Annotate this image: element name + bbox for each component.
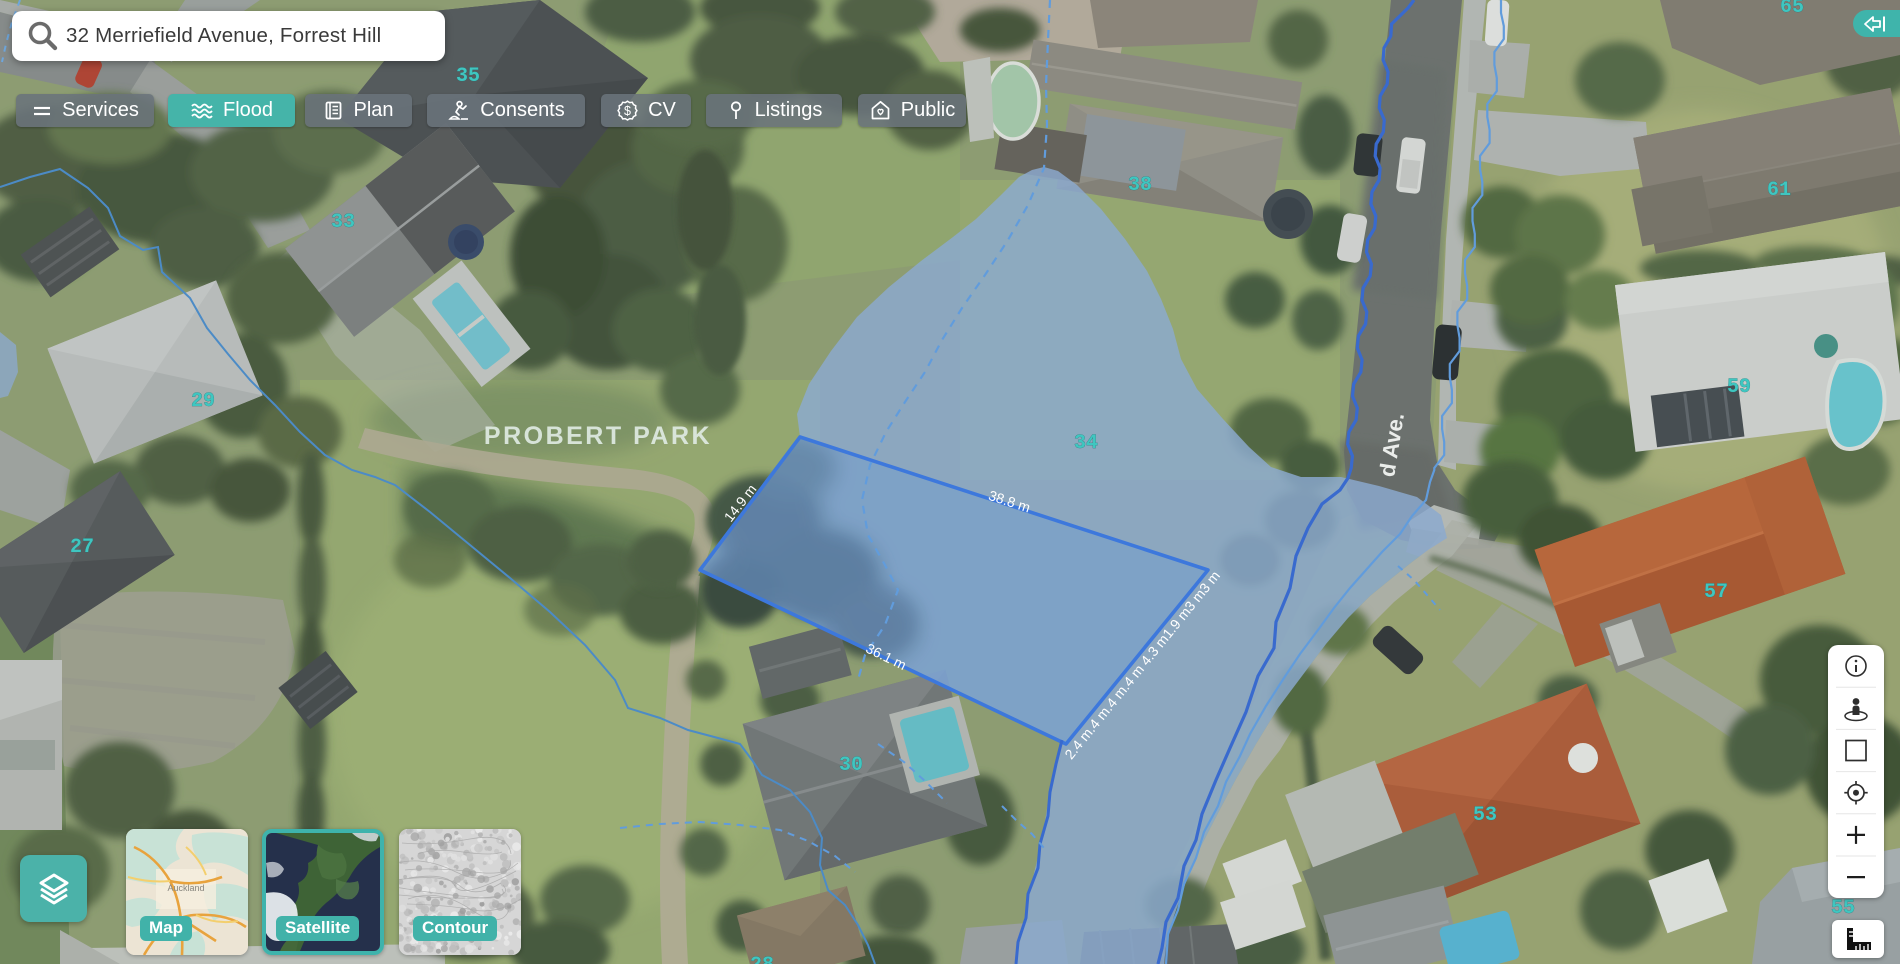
svg-text:65: 65: [1780, 0, 1804, 19]
svg-text:53: 53: [1473, 804, 1497, 827]
svg-text:34: 34: [1074, 432, 1098, 455]
svg-text:33: 33: [331, 211, 355, 234]
svg-text:29: 29: [191, 390, 215, 413]
svg-text:30: 30: [839, 754, 863, 777]
svg-text:55: 55: [1831, 897, 1855, 920]
svg-text:$: $: [624, 104, 631, 118]
svg-text:38: 38: [1128, 174, 1152, 197]
svg-text:59: 59: [1727, 376, 1751, 399]
svg-text:57: 57: [1704, 581, 1728, 604]
svg-text:35: 35: [456, 65, 480, 88]
svg-text:Auckland: Auckland: [167, 883, 204, 893]
svg-text:61: 61: [1767, 179, 1791, 202]
svg-text:PROBERT PARK: PROBERT PARK: [484, 422, 712, 450]
svg-text:27: 27: [70, 536, 94, 559]
svg-text:28: 28: [750, 954, 774, 964]
